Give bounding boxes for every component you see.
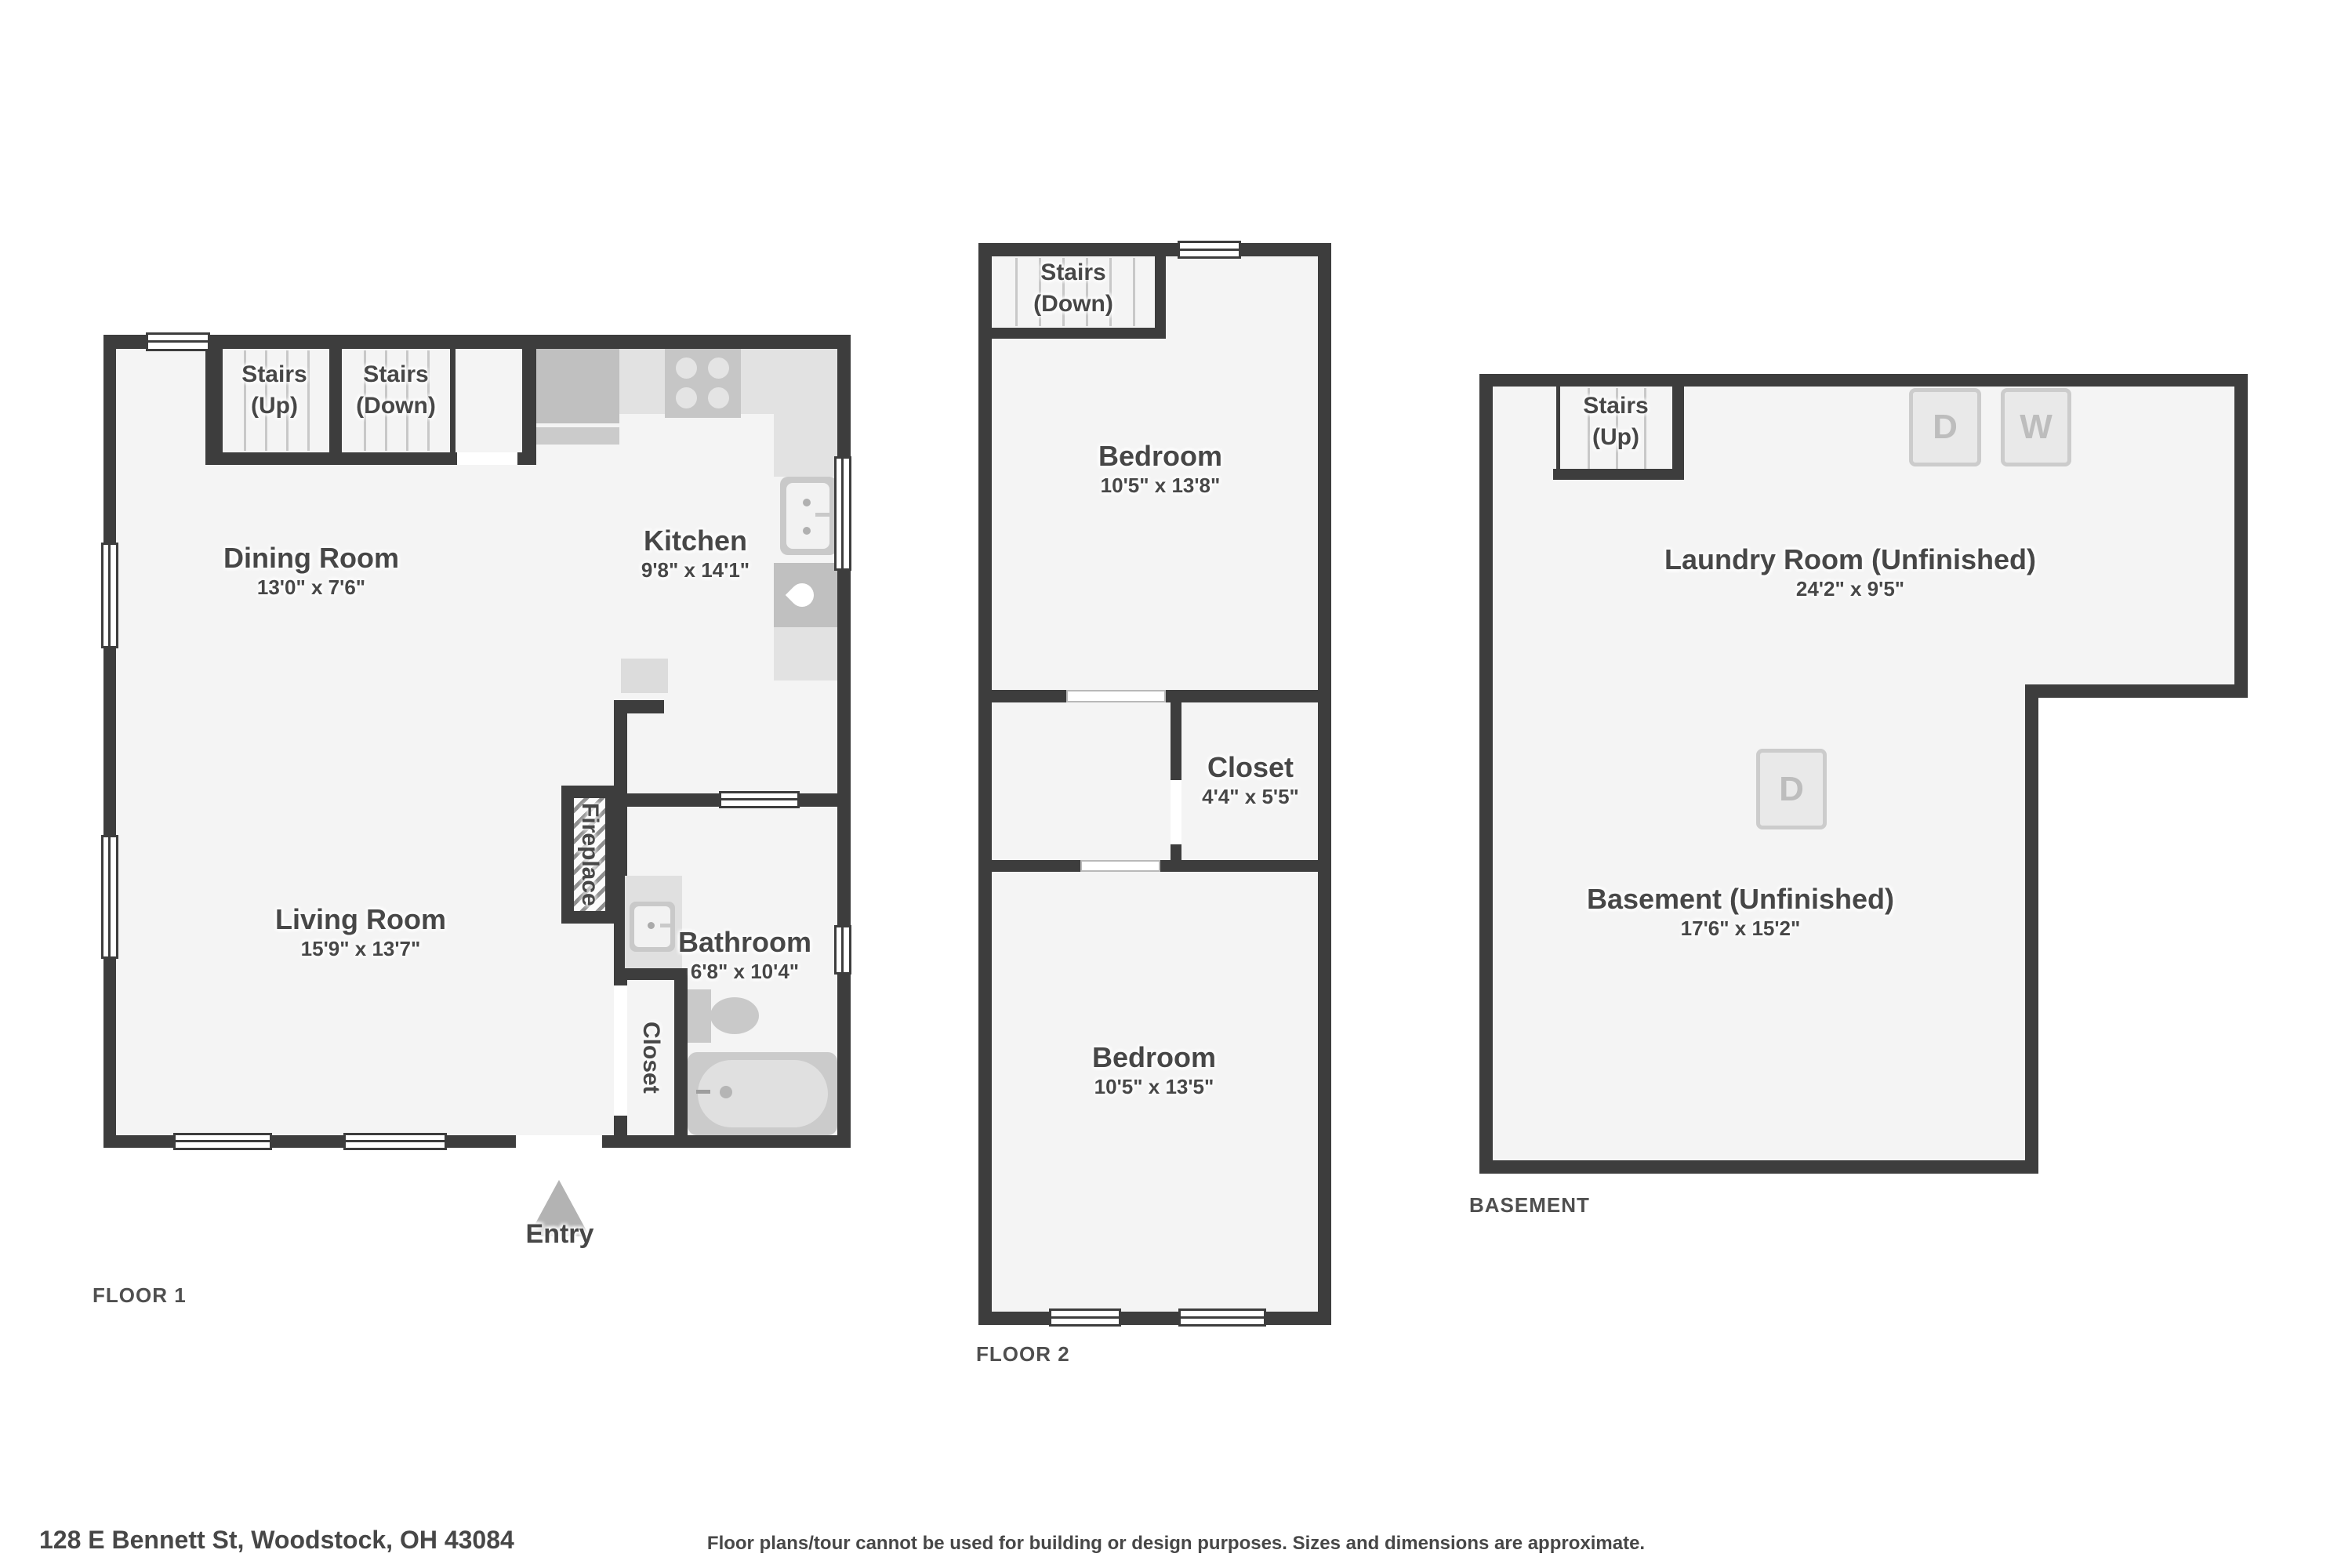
wall bbox=[2025, 684, 2038, 1174]
room-name: Laundry Room (Unfinished) bbox=[1664, 544, 2036, 575]
address-text: 128 E Bennett St, Woodstock, OH 43084 bbox=[39, 1526, 514, 1555]
washer-box: W bbox=[2001, 388, 2071, 466]
dryer-box: D bbox=[1756, 749, 1827, 829]
floor-plan-page: Stairs (Up) Stairs (Down) bbox=[0, 0, 2352, 1568]
dryer-box: D bbox=[1909, 388, 1981, 466]
basement-plan: Stairs (Up) D W D Laundry Room (Unfinish… bbox=[0, 0, 2352, 1568]
stairs-up-line1: Stairs bbox=[1583, 390, 1648, 422]
disclaimer-text: Floor plans/tour cannot be used for buil… bbox=[707, 1533, 1645, 1555]
wall bbox=[1672, 374, 1684, 480]
stairs-up-label: Stairs (Up) bbox=[1583, 390, 1648, 453]
room-name: Basement (Unfinished) bbox=[1587, 884, 1894, 915]
wall bbox=[1479, 374, 1493, 1174]
wall bbox=[1553, 469, 1684, 480]
wall bbox=[1556, 387, 1560, 469]
room-dims: 17'6" x 15'2" bbox=[1587, 916, 1894, 940]
stairs-up-line2: (Up) bbox=[1583, 422, 1648, 453]
room-dims: 24'2" x 9'5" bbox=[1664, 577, 2036, 601]
basement-tag: BASEMENT bbox=[1469, 1193, 1590, 1218]
laundry-room-label: Laundry Room (Unfinished) 24'2" x 9'5" bbox=[1664, 544, 2036, 601]
wall bbox=[2025, 684, 2248, 698]
basement-room-label: Basement (Unfinished) 17'6" x 15'2" bbox=[1587, 884, 1894, 940]
wall bbox=[2234, 374, 2248, 698]
wall bbox=[1479, 374, 2248, 387]
wall bbox=[1479, 1160, 2038, 1174]
